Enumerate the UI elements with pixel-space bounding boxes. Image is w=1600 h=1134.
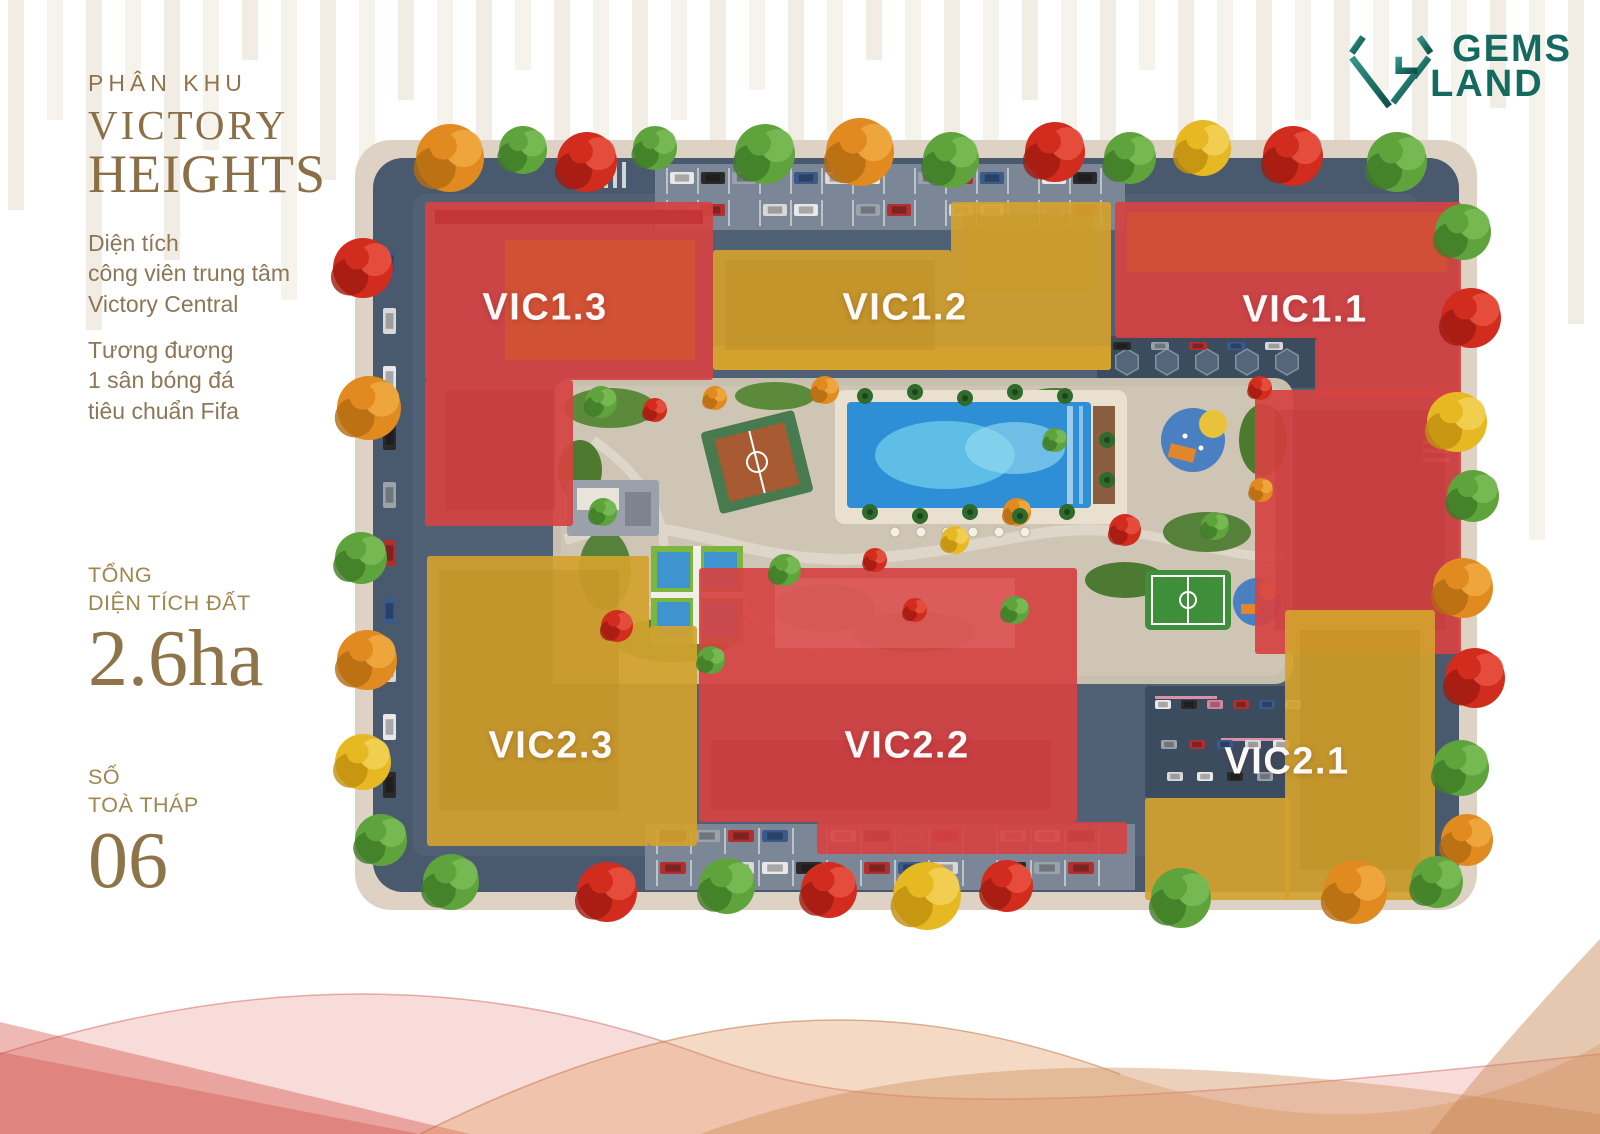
tower-label-vic2-2: VIC2.2 xyxy=(844,725,969,768)
sidebar: PHÂN KHU VICTORY HEIGHTS Diện tích công … xyxy=(88,70,358,426)
tower-label-vic2-1: VIC2.1 xyxy=(1224,741,1349,784)
stat-tower-count-label: SỐ TOÀ THÁP xyxy=(88,764,199,819)
description-equivalent-line1: Tương đương xyxy=(88,335,358,365)
description-equivalent-line3: tiêu chuẩn Fifa xyxy=(88,396,358,426)
description-equivalent: Tương đương 1 sân bóng đá tiêu chuẩn Fif… xyxy=(88,335,358,426)
description-park: Diện tích công viên trung tâm Victory Ce… xyxy=(88,228,358,319)
description-equivalent-line2: 1 sân bóng đá xyxy=(88,365,358,395)
logo-word-gems: GEMS xyxy=(1452,32,1572,67)
gemsland-logo: GEMS LAND xyxy=(1342,22,1572,112)
site-plan-graphic xyxy=(355,140,1477,910)
stat-total-area-label-line1: TỔNG xyxy=(88,562,264,590)
poster-canvas: PHÂN KHU VICTORY HEIGHTS Diện tích công … xyxy=(0,0,1600,1134)
stat-total-area-label-line2: DIỆN TÍCH ĐẤT xyxy=(88,590,264,618)
stat-total-area: TỔNG DIỆN TÍCH ĐẤT 2.6ha xyxy=(88,562,264,701)
swimming-pool xyxy=(835,390,1127,537)
site-plan: VIC1.3 VIC1.2 VIC1.1 VIC2.3 VIC2.2 VIC2.… xyxy=(355,140,1477,910)
tower-label-vic1-2: VIC1.2 xyxy=(842,287,967,330)
stat-tower-count-label-line2: TOÀ THÁP xyxy=(88,792,199,820)
stat-tower-count-value: 06 xyxy=(88,821,199,903)
project-title-line2: HEIGHTS xyxy=(88,147,358,202)
description-park-line2: công viên trung tâm xyxy=(88,258,358,288)
stat-tower-count: SỐ TOÀ THÁP 06 xyxy=(88,764,199,903)
description-park-line3: Victory Central xyxy=(88,289,358,319)
section-label: PHÂN KHU xyxy=(88,70,358,97)
logo-word-land: LAND xyxy=(1430,67,1572,102)
tower-label-vic1-3: VIC1.3 xyxy=(482,287,607,330)
tower-label-vic1-1: VIC1.1 xyxy=(1242,289,1367,332)
stat-total-area-value: 2.6ha xyxy=(88,619,264,701)
tower-label-vic2-3: VIC2.3 xyxy=(488,725,613,768)
logo-wordmark: GEMS LAND xyxy=(1452,32,1572,102)
project-title-line1: VICTORY xyxy=(88,105,358,147)
stat-tower-count-label-line1: SỐ xyxy=(88,764,199,792)
description-park-line1: Diện tích xyxy=(88,228,358,258)
mini-football-pitch xyxy=(1145,570,1231,630)
stat-total-area-label: TỔNG DIỆN TÍCH ĐẤT xyxy=(88,562,264,617)
